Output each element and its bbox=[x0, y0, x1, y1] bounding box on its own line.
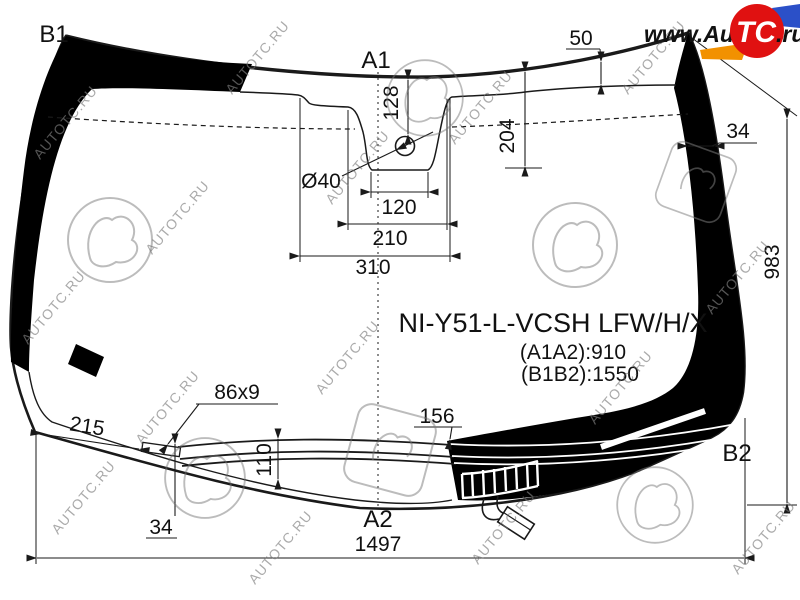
dim-notch-width: 120 bbox=[381, 196, 416, 219]
windshield-diagram: B1 A1 A2 B2 50 34 983 Ø40 128 204 120 21… bbox=[0, 0, 800, 600]
dim-bracket-outer: 310 bbox=[355, 256, 390, 279]
dim-width: 1497 bbox=[355, 533, 402, 556]
svg-text:AUTOTC.RU: AUTOTC.RU bbox=[222, 17, 292, 97]
dim-left-band: 34 bbox=[149, 516, 173, 539]
dim-right-band: 34 bbox=[726, 120, 750, 143]
dim-top-band: 50 bbox=[569, 27, 592, 50]
logo-ru: .ru bbox=[776, 21, 800, 47]
dim-bracket-depth: 204 bbox=[496, 118, 519, 153]
svg-text:AUTOTC.RU: AUTOTC.RU bbox=[132, 367, 202, 447]
svg-text:AUTOTC.RU: AUTOTC.RU bbox=[312, 317, 382, 397]
dim-bracket-width: 210 bbox=[372, 227, 407, 250]
svg-text:AUTOTC.RU: AUTOTC.RU bbox=[728, 497, 798, 577]
svg-text:AUTOTC.RU: AUTOTC.RU bbox=[322, 127, 392, 207]
part-code: NI-Y51-L-VCSH LFW/H/X bbox=[398, 308, 707, 338]
part-a1a2: (A1A2):910 bbox=[520, 341, 626, 364]
trim-dashed-line-right bbox=[452, 114, 688, 127]
svg-text:AUTOTC.RU: AUTOTC.RU bbox=[142, 177, 212, 257]
logo-tc: TC bbox=[736, 16, 777, 49]
band-break-mark bbox=[68, 344, 104, 377]
dim-deicer-top: 156 bbox=[419, 405, 454, 428]
svg-text:AUTOTC.RU: AUTOTC.RU bbox=[245, 507, 315, 587]
dim-deicer-height: 110 bbox=[253, 443, 276, 476]
corner-label-a2: A2 bbox=[363, 506, 392, 533]
watermark-logo-circle bbox=[68, 60, 740, 543]
corner-label-b1: B1 bbox=[39, 21, 68, 48]
trim-dashed-line-left bbox=[48, 117, 355, 129]
dim-molding: 86x9 bbox=[214, 381, 260, 404]
dim-left-offset: 215 bbox=[68, 412, 106, 440]
corner-label-b2: B2 bbox=[722, 440, 751, 467]
wiper-deicer-lines bbox=[178, 440, 456, 466]
diagram-canvas: B1 A1 A2 B2 50 34 983 Ø40 128 204 120 21… bbox=[0, 0, 800, 600]
svg-text:AUTOTC.RU: AUTOTC.RU bbox=[48, 457, 118, 537]
corner-label-a1: A1 bbox=[361, 47, 390, 74]
